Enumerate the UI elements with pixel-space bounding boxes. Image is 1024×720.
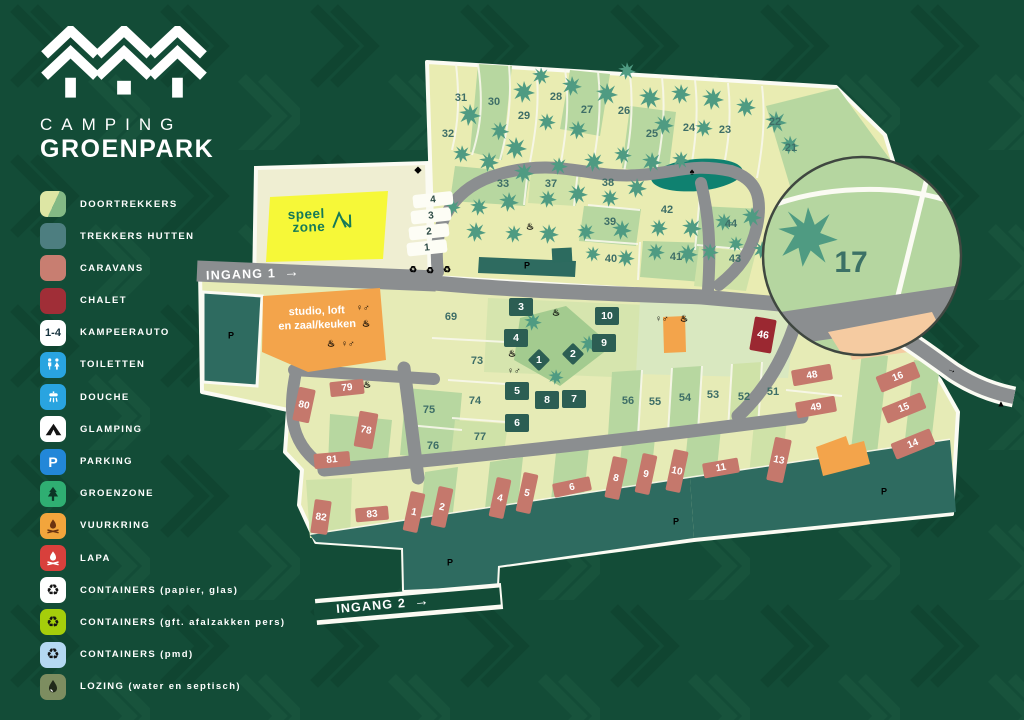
campground-poster: CAMPING GROENPARK DOORTREKKERS TREKKERS … (0, 0, 1024, 720)
drain-icon (40, 674, 66, 700)
studio-text-2: en zaal/keuken (278, 318, 356, 334)
legend-label: TOILETTEN (80, 359, 145, 370)
legend-item-lozing: LOZING (water en septisch) (40, 674, 285, 700)
arrow-icon: → (413, 592, 429, 610)
groenpark-logo-icon (40, 26, 208, 102)
legend-label: DOUCHE (80, 392, 130, 403)
legend-label: CONTAINERS (gft. afalzakken pers) (80, 617, 285, 628)
legend-item-glamping: GLAMPING (40, 416, 285, 442)
tent-icon (40, 416, 66, 442)
legend-label: CONTAINERS (pmd) (80, 649, 194, 660)
legend-item-containers-papier: ♻ CONTAINERS (papier, glas) (40, 577, 285, 603)
legend-item-parking: P PARKING (40, 449, 285, 475)
legend-label: KAMPEERAUTO (80, 327, 170, 338)
shower-icon (40, 384, 66, 410)
lapa-icon (40, 545, 66, 571)
campfire-icon (40, 513, 66, 539)
brand-header: CAMPING GROENPARK (40, 26, 214, 164)
speelzone-text-2: zone (288, 221, 325, 235)
recycle-icon: ♻ (40, 642, 66, 668)
studio-label: studio, loft en zaal/keuken (278, 304, 357, 334)
legend-label: GLAMPING (80, 424, 142, 435)
brand-line-1: CAMPING (40, 115, 214, 135)
parking-badge: P (40, 449, 66, 475)
recycle-glyph: ♻ (46, 615, 59, 630)
legend-label: CONTAINERS (papier, glas) (80, 585, 238, 596)
playground-icon (330, 211, 355, 230)
caravans-swatch (40, 255, 66, 281)
legend: DOORTREKKERS TREKKERS HUTTEN CARAVANS CH… (40, 191, 285, 700)
magnifier-plot-number: 17 (834, 246, 867, 280)
legend-label: VUURKRING (80, 520, 150, 531)
tree-icon (40, 481, 66, 507)
toilets-icon (40, 352, 66, 378)
legend-label: GROENZONE (80, 488, 154, 499)
recycle-icon: ♻ (40, 577, 66, 603)
recycle-icon: ♻ (40, 609, 66, 635)
legend-item-lapa: LAPA (40, 545, 285, 571)
legend-item-caravans: CARAVANS (40, 255, 285, 281)
legend-item-vuurkring: VUURKRING (40, 513, 285, 539)
doortrekkers-swatch (40, 191, 66, 217)
arrow-icon: → (284, 263, 300, 281)
legend-label: CARAVANS (80, 263, 144, 274)
legend-item-groenzone: GROENZONE (40, 481, 285, 507)
legend-item-trekkers-hutten: TREKKERS HUTTEN (40, 223, 285, 249)
legend-item-kampeerauto: 1-4 KAMPEERAUTO (40, 320, 285, 346)
legend-item-containers-gft: ♻ CONTAINERS (gft. afalzakken pers) (40, 609, 285, 635)
legend-label: LAPA (80, 553, 111, 564)
recycle-glyph: ♻ (46, 583, 59, 598)
kampeerauto-badge: 1-4 (40, 320, 66, 346)
chalet-swatch (40, 288, 66, 314)
trekkers-hutten-swatch (40, 223, 66, 249)
legend-label: CHALET (80, 295, 127, 306)
legend-item-doortrekkers: DOORTREKKERS (40, 191, 285, 217)
legend-item-containers-pmd: ♻ CONTAINERS (pmd) (40, 642, 285, 668)
legend-item-douche: DOUCHE (40, 384, 285, 410)
recycle-glyph: ♻ (46, 647, 59, 662)
legend-item-toiletten: TOILETTEN (40, 352, 285, 378)
legend-item-chalet: CHALET (40, 288, 285, 314)
brand-line-2: GROENPARK (40, 135, 214, 164)
legend-label: LOZING (water en septisch) (80, 681, 241, 692)
speelzone-label: speel zone (288, 207, 355, 235)
legend-label: DOORTREKKERS (80, 199, 178, 210)
legend-label: TREKKERS HUTTEN (80, 231, 194, 242)
legend-label: PARKING (80, 456, 133, 467)
